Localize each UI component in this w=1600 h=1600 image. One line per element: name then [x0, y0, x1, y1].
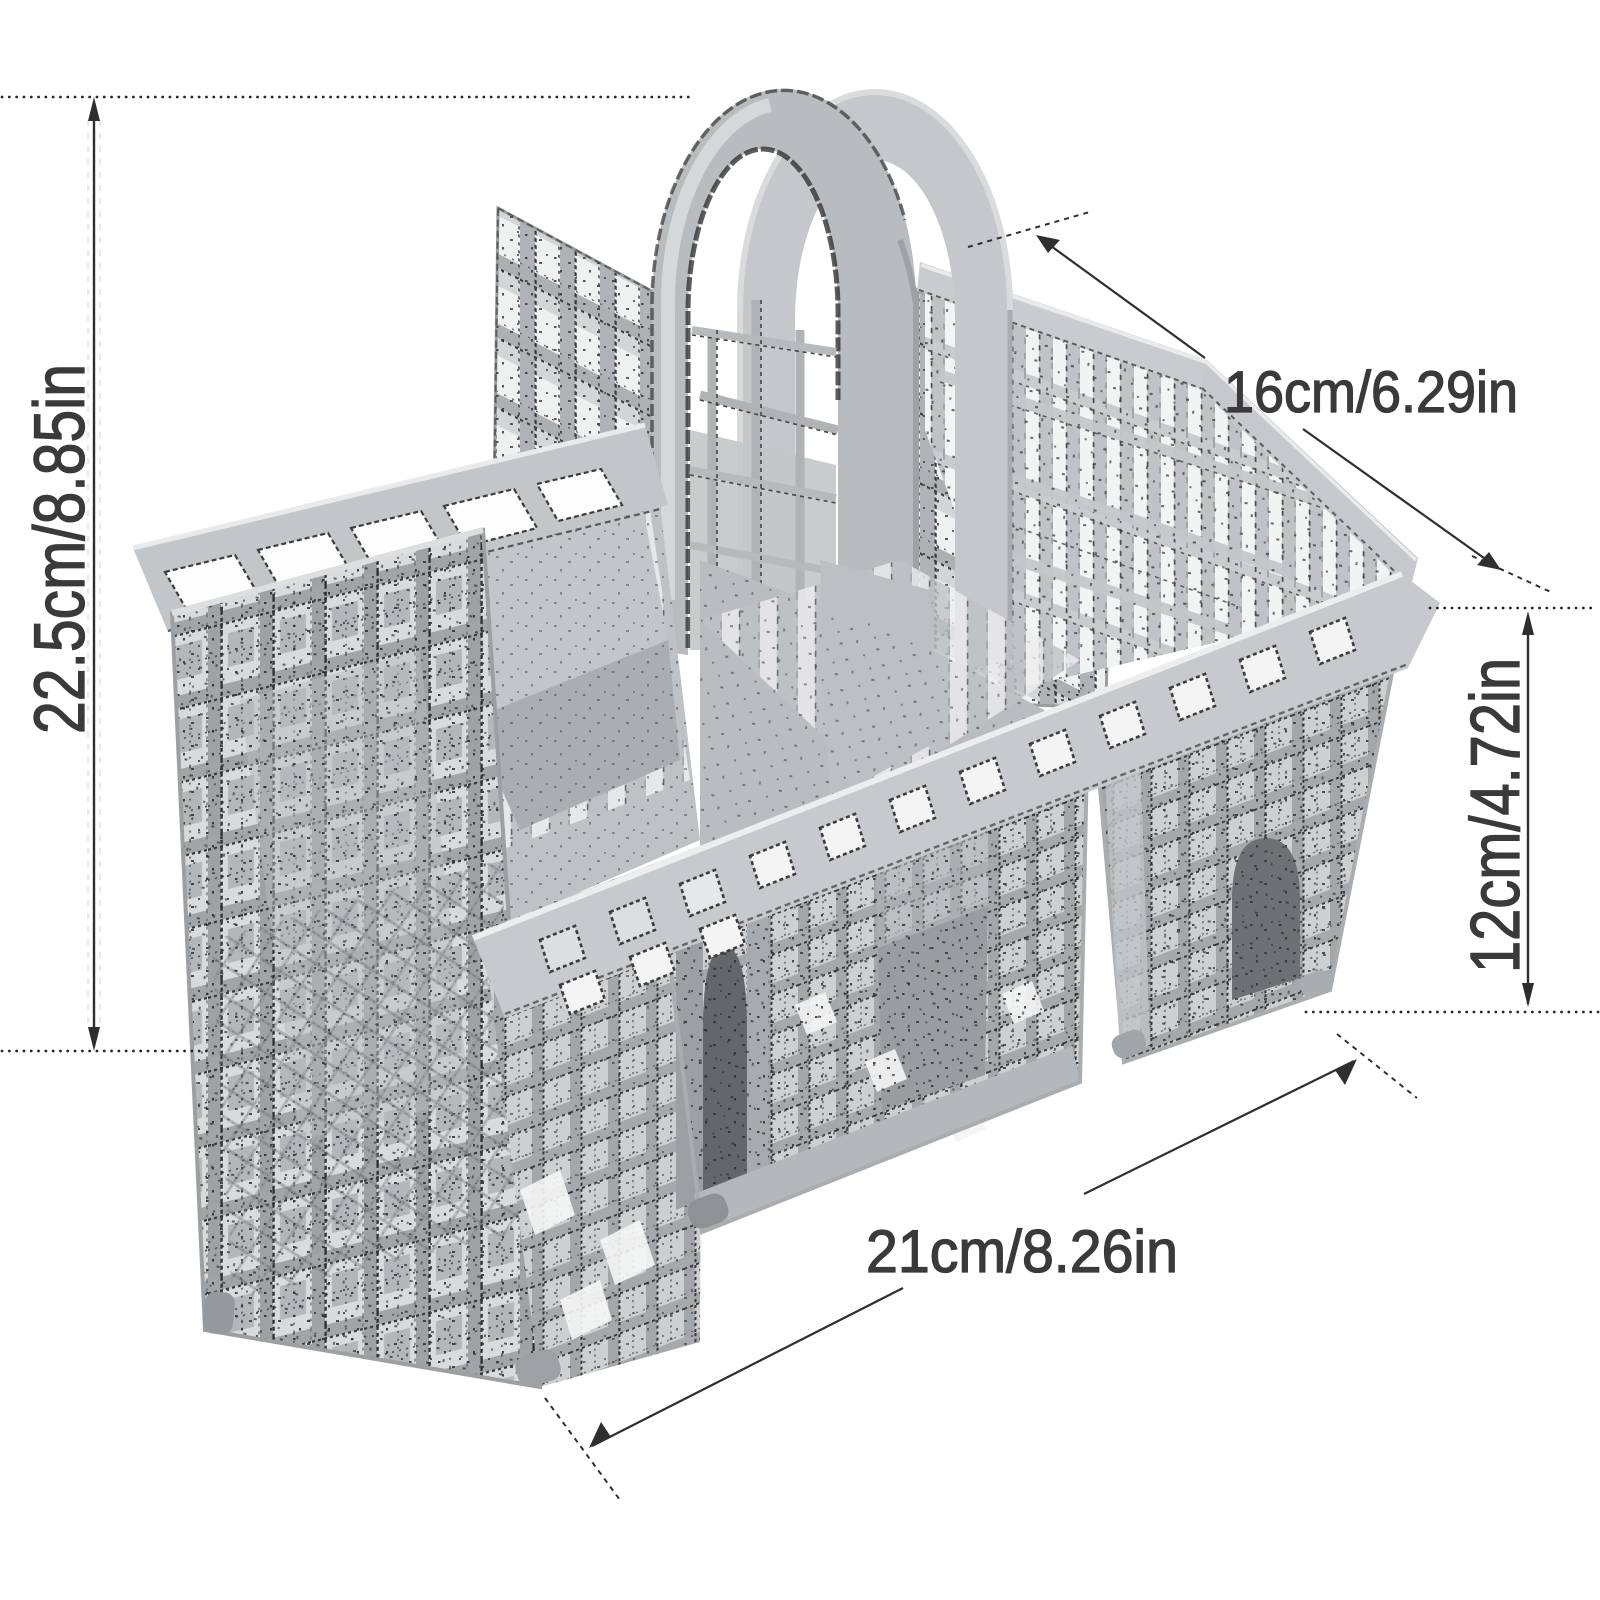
svg-text:21cm/8.26in: 21cm/8.26in: [866, 1218, 1178, 1285]
svg-text:12cm/4.72in: 12cm/4.72in: [1456, 658, 1534, 973]
svg-text:16cm/6.29in: 16cm/6.29in: [1224, 360, 1518, 425]
svg-text:22.5cm/8.85in: 22.5cm/8.85in: [21, 364, 100, 734]
